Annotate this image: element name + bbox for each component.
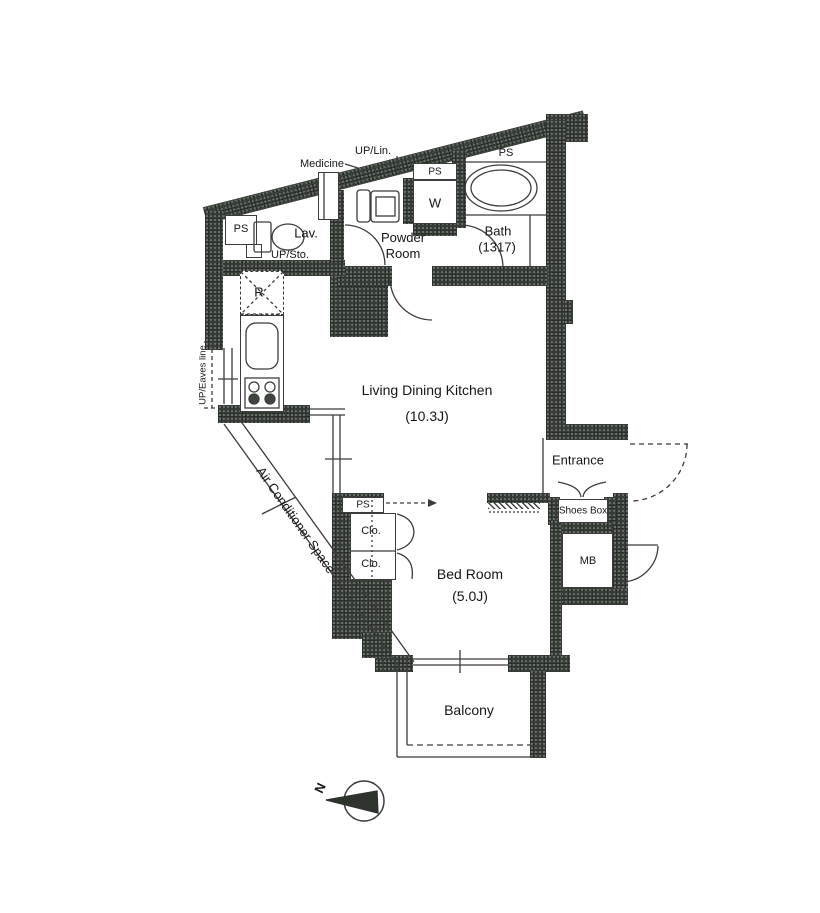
ps-lav-label: PS: [234, 223, 249, 235]
shoes-box-label: Shoes Box: [559, 506, 607, 517]
wall-powder-south-right: [432, 266, 454, 286]
wall-bedroom-southwest-link: [362, 632, 392, 658]
meter-box-label: MB: [580, 555, 597, 567]
closet-door-arcs: [397, 514, 414, 579]
washer-label: W: [429, 196, 441, 211]
track-arrowhead: [428, 499, 437, 507]
compass-north-label: N: [311, 781, 329, 796]
bedroom-size-label: (5.0J): [452, 588, 488, 604]
ldk-corner-window: [307, 409, 352, 497]
bath-size-label: (1317): [478, 240, 516, 255]
wall-powder-south-left: [337, 266, 392, 286]
wall-right-exterior: [546, 120, 566, 440]
lav-step: [246, 244, 262, 258]
kitchen-counter: [240, 315, 284, 412]
ldk-size-label: (10.3J): [405, 408, 449, 424]
bath-name-label: Bath: [485, 224, 512, 239]
closet-upper-label: Clo.: [361, 525, 381, 537]
ps-bath-label: PS: [499, 147, 514, 159]
wall-bedroom-southwest-mass: [332, 577, 392, 639]
powder-room-label: Powder Room: [367, 230, 439, 262]
ps-powder-label: PS: [428, 167, 441, 178]
entrance-step-curves: [558, 482, 606, 497]
wall-bedroom-east: [550, 520, 562, 660]
ps-closet-label: PS: [356, 500, 369, 511]
lavatory-label: Lav.: [294, 226, 318, 241]
up-eaves-line-label: UP/Eaves line: [198, 345, 209, 405]
wall-top-diagonal: [203, 110, 587, 223]
wall-bedroom-north-right: [487, 493, 550, 503]
refrigerator-label: R: [254, 285, 263, 300]
ldk-name-label: Living Dining Kitchen: [362, 382, 493, 398]
wall-right-bump: [564, 300, 573, 324]
balcony-label: Balcony: [444, 702, 494, 718]
wall-below-mb: [556, 588, 628, 605]
up-sto-label: UP/Sto.: [271, 249, 309, 261]
medicine-label: Medicine: [300, 158, 344, 170]
bedroom-name-label: Bed Room: [437, 566, 503, 582]
wall-left-exterior: [205, 210, 223, 350]
air-conditioner-space-label: Air Conditioner Space: [254, 464, 339, 576]
medicine-cabinet: [318, 172, 339, 220]
compass-needle: [326, 791, 378, 813]
balcony-window: [413, 650, 508, 673]
bathtub: [465, 165, 537, 211]
sliding-door-hatch: [488, 503, 540, 509]
floor-plan: Medicine UP/Lin. PS PS W Bath (1317) Lav…: [0, 0, 820, 913]
wall-balcony-right: [530, 670, 546, 758]
entrance-label: Entrance: [552, 453, 604, 468]
powder-door-arc: [390, 278, 432, 320]
kitchen-window: [218, 348, 238, 404]
washbasin: [357, 190, 399, 222]
up-lin-label: UP/Lin.: [355, 145, 391, 157]
entrance-door-arc: [630, 444, 688, 501]
closet-lower-label: Clo.: [361, 558, 381, 570]
wall-bath-south: [452, 266, 548, 286]
compass: [326, 781, 384, 821]
wall-entrance-top: [546, 424, 628, 440]
